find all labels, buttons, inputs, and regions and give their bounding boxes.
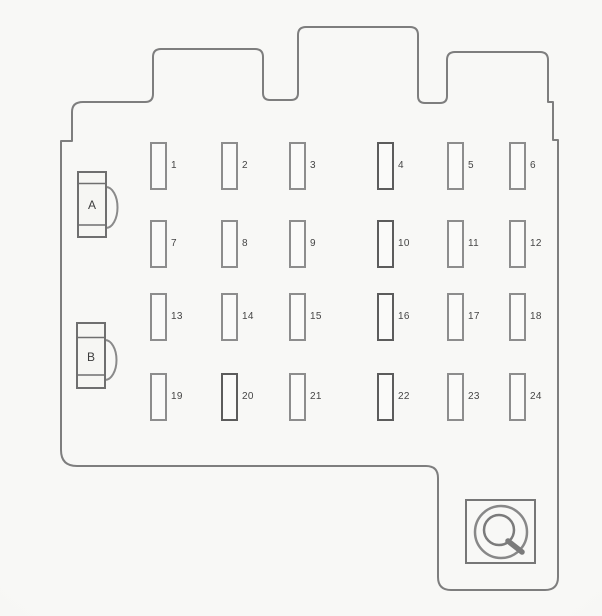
fuse-8-body: [221, 220, 238, 268]
fuse-6-body: [509, 142, 526, 190]
fuse-20: 20: [221, 373, 238, 421]
fuse-5: 5: [447, 142, 464, 190]
fuse-6: 6: [509, 142, 526, 190]
fuse-10: 10: [377, 220, 394, 268]
fuse-12: 12: [509, 220, 526, 268]
fuse-11-body: [447, 220, 464, 268]
fuse-16: 16: [377, 293, 394, 341]
fuse-5-label: 5: [468, 161, 474, 171]
fuse-1-label: 1: [171, 161, 177, 171]
fuse-7-body: [150, 220, 167, 268]
fuse-24-body: [509, 373, 526, 421]
fuse-15: 15: [289, 293, 306, 341]
fuse-13-body: [150, 293, 167, 341]
fuse-3-body: [289, 142, 306, 190]
fuse-20-body: [221, 373, 238, 421]
fuse-3-label: 3: [310, 161, 316, 171]
fuse-3: 3: [289, 142, 306, 190]
fuse-12-label: 12: [530, 239, 542, 249]
fuse-13: 13: [150, 293, 167, 341]
fuse-22-body: [377, 373, 394, 421]
connector-b: B: [77, 323, 117, 388]
fuse-9-label: 9: [310, 239, 316, 249]
connector-b-arc: [105, 340, 117, 380]
fuse-14: 14: [221, 293, 238, 341]
fuse-17: 17: [447, 293, 464, 341]
connector-a-arc: [106, 187, 118, 228]
fuse-11: 11: [447, 220, 464, 268]
fuse-22: 22: [377, 373, 394, 421]
fuse-17-body: [447, 293, 464, 341]
fuse-4-label: 4: [398, 161, 404, 171]
fuse-18-label: 18: [530, 312, 542, 322]
fuse-19: 19: [150, 373, 167, 421]
fuse-17-label: 17: [468, 312, 480, 322]
fuse-2: 2: [221, 142, 238, 190]
mounting-screw-icon: [466, 500, 535, 563]
fuse-2-label: 2: [242, 161, 248, 171]
fuse-23-label: 23: [468, 392, 480, 402]
fuse-16-label: 16: [398, 312, 410, 322]
fuse-4: 4: [377, 142, 394, 190]
fuse-15-body: [289, 293, 306, 341]
fuse-21: 21: [289, 373, 306, 421]
fuse-23-body: [447, 373, 464, 421]
fuse-8: 8: [221, 220, 238, 268]
fuse-19-label: 19: [171, 392, 183, 402]
mounting-screw-frame: [466, 500, 535, 563]
fuse-22-label: 22: [398, 392, 410, 402]
fuse-9: 9: [289, 220, 306, 268]
fuse-15-label: 15: [310, 312, 322, 322]
connector-b-label: B: [87, 350, 95, 364]
fuse-21-label: 21: [310, 392, 322, 402]
fuse-10-body: [377, 220, 394, 268]
fuse-19-body: [150, 373, 167, 421]
fuse-box-diagram: A B 1 2 3 4 5 6 7 8 9 10 11 12 13 14 15 …: [0, 0, 602, 616]
fuse-20-label: 20: [242, 392, 254, 402]
fuse-14-body: [221, 293, 238, 341]
fuse-6-label: 6: [530, 161, 536, 171]
fuse-8-label: 8: [242, 239, 248, 249]
fuse-24: 24: [509, 373, 526, 421]
fuse-18: 18: [509, 293, 526, 341]
mounting-screw-tail: [508, 541, 522, 552]
fuse-5-body: [447, 142, 464, 190]
fuse-2-body: [221, 142, 238, 190]
fuse-1-body: [150, 142, 167, 190]
panel-outline: [61, 27, 558, 590]
fuse-24-label: 24: [530, 392, 542, 402]
fuse-12-body: [509, 220, 526, 268]
fuse-4-body: [377, 142, 394, 190]
fuse-10-label: 10: [398, 239, 410, 249]
connector-a: A: [78, 172, 118, 237]
fuse-21-body: [289, 373, 306, 421]
fuse-9-body: [289, 220, 306, 268]
fuse-1: 1: [150, 142, 167, 190]
fuse-16-body: [377, 293, 394, 341]
fuse-13-label: 13: [171, 312, 183, 322]
fuse-11-label: 11: [468, 239, 479, 249]
fuse-14-label: 14: [242, 312, 254, 322]
fuse-7: 7: [150, 220, 167, 268]
connector-a-label: A: [88, 198, 96, 212]
fuse-18-body: [509, 293, 526, 341]
fuse-23: 23: [447, 373, 464, 421]
fuse-7-label: 7: [171, 239, 177, 249]
